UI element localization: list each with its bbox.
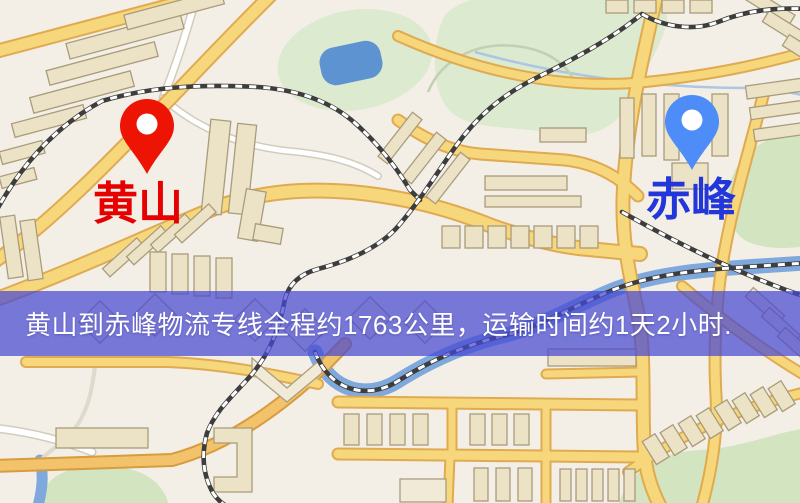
- origin-label: 黄山: [93, 177, 183, 230]
- route-info-text: 黄山到赤峰物流专线全程约1763公里，运输时间约1天2小时.: [25, 305, 732, 342]
- destination-label: 赤峰: [646, 173, 736, 226]
- logistics-route-map: 黄山 赤峰 黄山到赤峰物流专线全程约1763公里，运输时间约1天2小时.: [0, 0, 800, 503]
- map-canvas[interactable]: 黄山 赤峰: [0, 0, 800, 503]
- route-info-banner: 黄山到赤峰物流专线全程约1763公里，运输时间约1天2小时.: [0, 291, 800, 356]
- origin-pin-icon[interactable]: [120, 99, 174, 174]
